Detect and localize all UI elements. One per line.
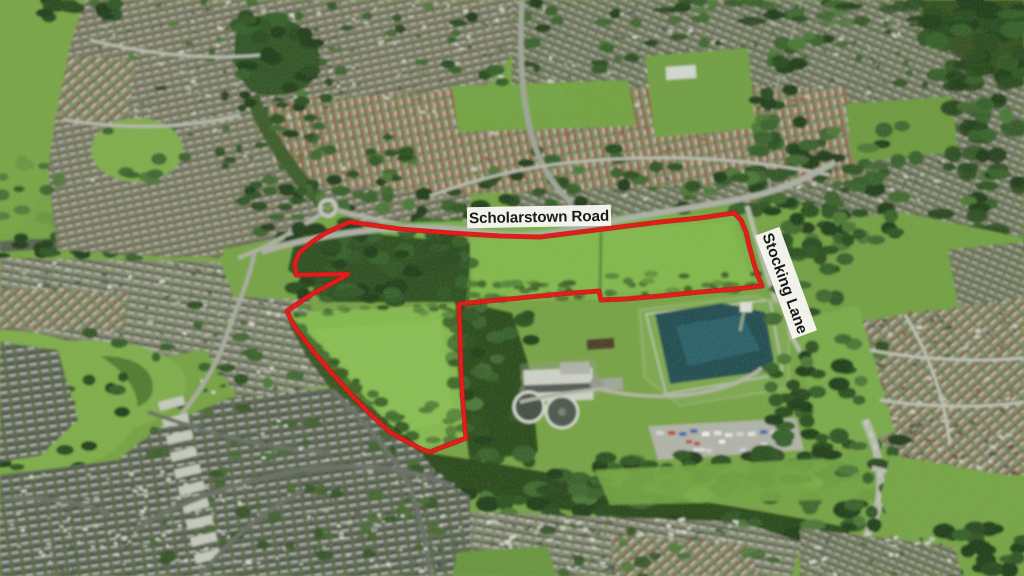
- svg-text:Scholarstown Road: Scholarstown Road: [469, 208, 609, 227]
